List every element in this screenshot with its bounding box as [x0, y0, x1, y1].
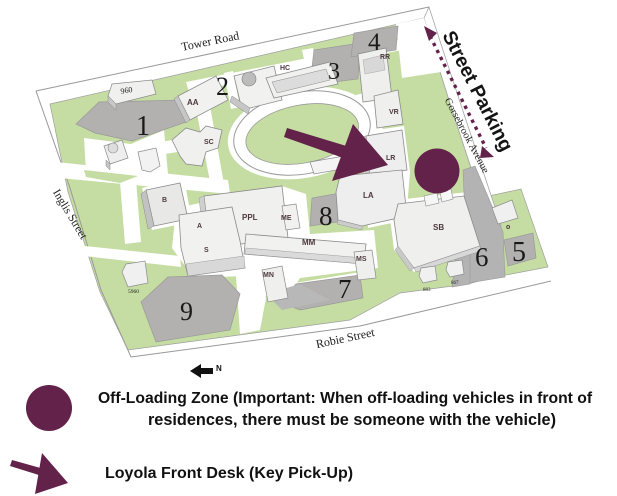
svg-text:ME: ME [281, 215, 292, 222]
svg-text:VR: VR [389, 109, 399, 116]
svg-text:883: 883 [423, 288, 431, 293]
svg-text:MS: MS [356, 256, 367, 263]
svg-text:1: 1 [136, 111, 150, 142]
svg-text:2: 2 [216, 72, 229, 101]
svg-text:6: 6 [475, 242, 489, 272]
svg-text:7: 7 [338, 274, 352, 304]
svg-text:MM: MM [302, 238, 316, 247]
svg-text:S: S [204, 247, 209, 254]
svg-text:3: 3 [328, 59, 340, 85]
svg-text:RR: RR [380, 54, 390, 61]
svg-text:9: 9 [180, 297, 193, 326]
svg-text:SC: SC [204, 139, 214, 146]
svg-text:Loyola Front Desk (Key Pick-Up: Loyola Front Desk (Key Pick-Up) [105, 465, 353, 482]
svg-text:PPL: PPL [242, 213, 258, 222]
svg-text:o: o [506, 224, 510, 231]
svg-text:5: 5 [512, 237, 526, 268]
svg-text:LR: LR [386, 155, 395, 162]
svg-text:N: N [216, 364, 222, 373]
svg-text:4: 4 [368, 29, 381, 56]
svg-text:8: 8 [319, 201, 333, 231]
svg-text:SB: SB [433, 223, 444, 232]
svg-text:5960: 5960 [128, 289, 139, 295]
svg-text:B: B [162, 197, 167, 204]
svg-text:HC: HC [280, 65, 290, 72]
svg-text:Off-Loading Zone (Important: W: Off-Loading Zone (Important: When off-lo… [98, 390, 593, 407]
svg-text:MN: MN [263, 272, 274, 279]
svg-text:residences, there must be some: residences, there must be someone with t… [148, 411, 556, 429]
svg-text:AA: AA [187, 98, 199, 107]
svg-text:867: 867 [451, 281, 459, 286]
svg-text:LA: LA [363, 191, 374, 200]
svg-text:A: A [197, 223, 202, 230]
